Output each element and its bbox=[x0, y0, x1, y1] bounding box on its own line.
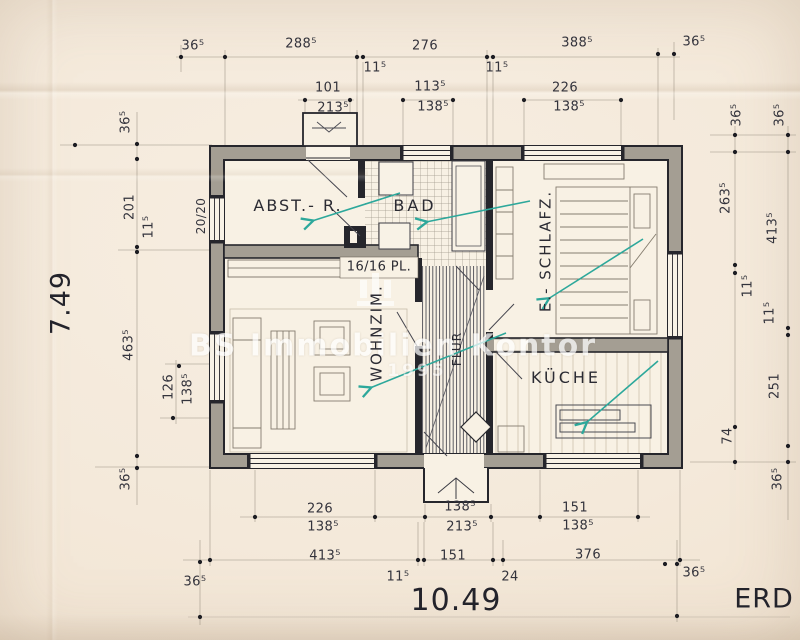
dim-porch-101: 101 bbox=[315, 82, 341, 95]
dim-top-276: 276 bbox=[412, 40, 438, 53]
entrance-porch-top bbox=[303, 113, 357, 146]
window-left-wohnzimmer bbox=[210, 331, 224, 404]
dim-total-width-10-49: 10.49 bbox=[411, 586, 502, 616]
dim-total-height-7-49: 7.49 bbox=[48, 271, 75, 335]
dim-left-138-5: 138⁵ bbox=[182, 373, 195, 405]
dim-roof-overhang-top-left: 36⁵ bbox=[182, 40, 205, 53]
dim-right-413-5: 413⁵ bbox=[767, 212, 780, 244]
dim-left-126: 126 bbox=[163, 374, 176, 400]
room-label-schlafzimmer: E.- SCHLAFZ. bbox=[539, 190, 554, 312]
dim-bottom-151-center: 151 bbox=[440, 550, 466, 563]
room-label-wohnzimmer: WOHNZIM. bbox=[370, 284, 385, 382]
dim-bottom-226: 226 bbox=[307, 503, 333, 516]
dim-bottom-138-5-right: 138⁵ bbox=[562, 520, 594, 533]
dim-left-36-5-top: 36⁵ bbox=[120, 111, 133, 134]
dim-top-11-5-left: 11⁵ bbox=[364, 62, 387, 75]
dim-right-36-5-bottom: 36⁵ bbox=[772, 468, 785, 491]
note-beam-16-16: 16/16 PL. bbox=[347, 261, 411, 274]
entrance-porch-bottom bbox=[424, 454, 488, 502]
dim-top-288-5: 288⁵ bbox=[285, 38, 317, 51]
dim-bottom-24: 24 bbox=[501, 571, 518, 584]
dim-right-74: 74 bbox=[722, 427, 735, 444]
dim-right-36-5-outer: 36⁵ bbox=[774, 104, 787, 127]
dim-right-36-5-inner: 36⁵ bbox=[731, 104, 744, 127]
dim-window-226: 226 bbox=[552, 82, 578, 95]
dim-right-251: 251 bbox=[769, 373, 782, 399]
room-label-bad: BAD bbox=[393, 198, 436, 214]
dim-roof-overhang-top-right: 36⁵ bbox=[683, 36, 706, 49]
room-label-abstellraum: ABST.- R. bbox=[253, 198, 342, 214]
dim-bottom-376: 376 bbox=[575, 549, 601, 562]
dim-bottom-413-5: 413⁵ bbox=[309, 550, 341, 563]
dim-window-113-5: 113⁵ bbox=[414, 81, 446, 94]
dim-bottom-138-5-center: 138⁵ bbox=[444, 501, 476, 514]
floor-label-erd: ERD bbox=[734, 586, 794, 613]
dim-top-11-5-right: 11⁵ bbox=[486, 62, 509, 75]
window-right-schlafzimmer bbox=[668, 251, 682, 340]
dim-bottom-151-right: 151 bbox=[562, 502, 588, 515]
dim-right-11-5-inner: 11⁵ bbox=[742, 275, 755, 298]
dim-porch-213-5: 213⁵ bbox=[317, 102, 349, 115]
room-label-flur: FLUR bbox=[451, 332, 463, 366]
dim-bottom-138-5-left: 138⁵ bbox=[307, 521, 339, 534]
dim-bottom-213-5: 213⁵ bbox=[446, 521, 478, 534]
dim-top-388-5: 388⁵ bbox=[561, 37, 593, 50]
dim-right-11-5-outer: 11⁵ bbox=[764, 302, 777, 325]
dim-bottom-36-5-left: 36⁵ bbox=[184, 576, 207, 589]
window-top-schlafzimmer bbox=[521, 146, 625, 160]
dim-right-263-5: 263⁵ bbox=[720, 182, 733, 214]
scanned-floorplan-page: BS Immobilien Kontor 1995 36⁵288⁵11⁵2761… bbox=[0, 0, 800, 640]
note-post-20-20: 20/20 bbox=[195, 198, 207, 235]
entrance-door-opening bbox=[306, 146, 350, 160]
window-top-bad bbox=[400, 146, 454, 160]
dim-bottom-36-5-right: 36⁵ bbox=[683, 567, 706, 580]
dim-left-463-5: 463⁵ bbox=[123, 329, 136, 361]
window-bottom-kueche bbox=[543, 454, 644, 468]
floor-plan-drawing bbox=[0, 0, 800, 640]
dim-left-201: 201 bbox=[124, 194, 137, 220]
dim-bottom-11-5: 11⁵ bbox=[387, 571, 410, 584]
dim-window-138-5-top: 138⁵ bbox=[417, 101, 449, 114]
room-label-kueche: KÜCHE bbox=[531, 370, 601, 386]
dim-window-138-5-top-right: 138⁵ bbox=[553, 101, 585, 114]
dim-left-36-5-bottom: 36⁵ bbox=[120, 468, 133, 491]
window-bottom-wohnzimmer bbox=[247, 454, 378, 468]
dim-left-11-5: 11⁵ bbox=[143, 216, 156, 239]
window-left-abstellraum bbox=[210, 195, 224, 244]
